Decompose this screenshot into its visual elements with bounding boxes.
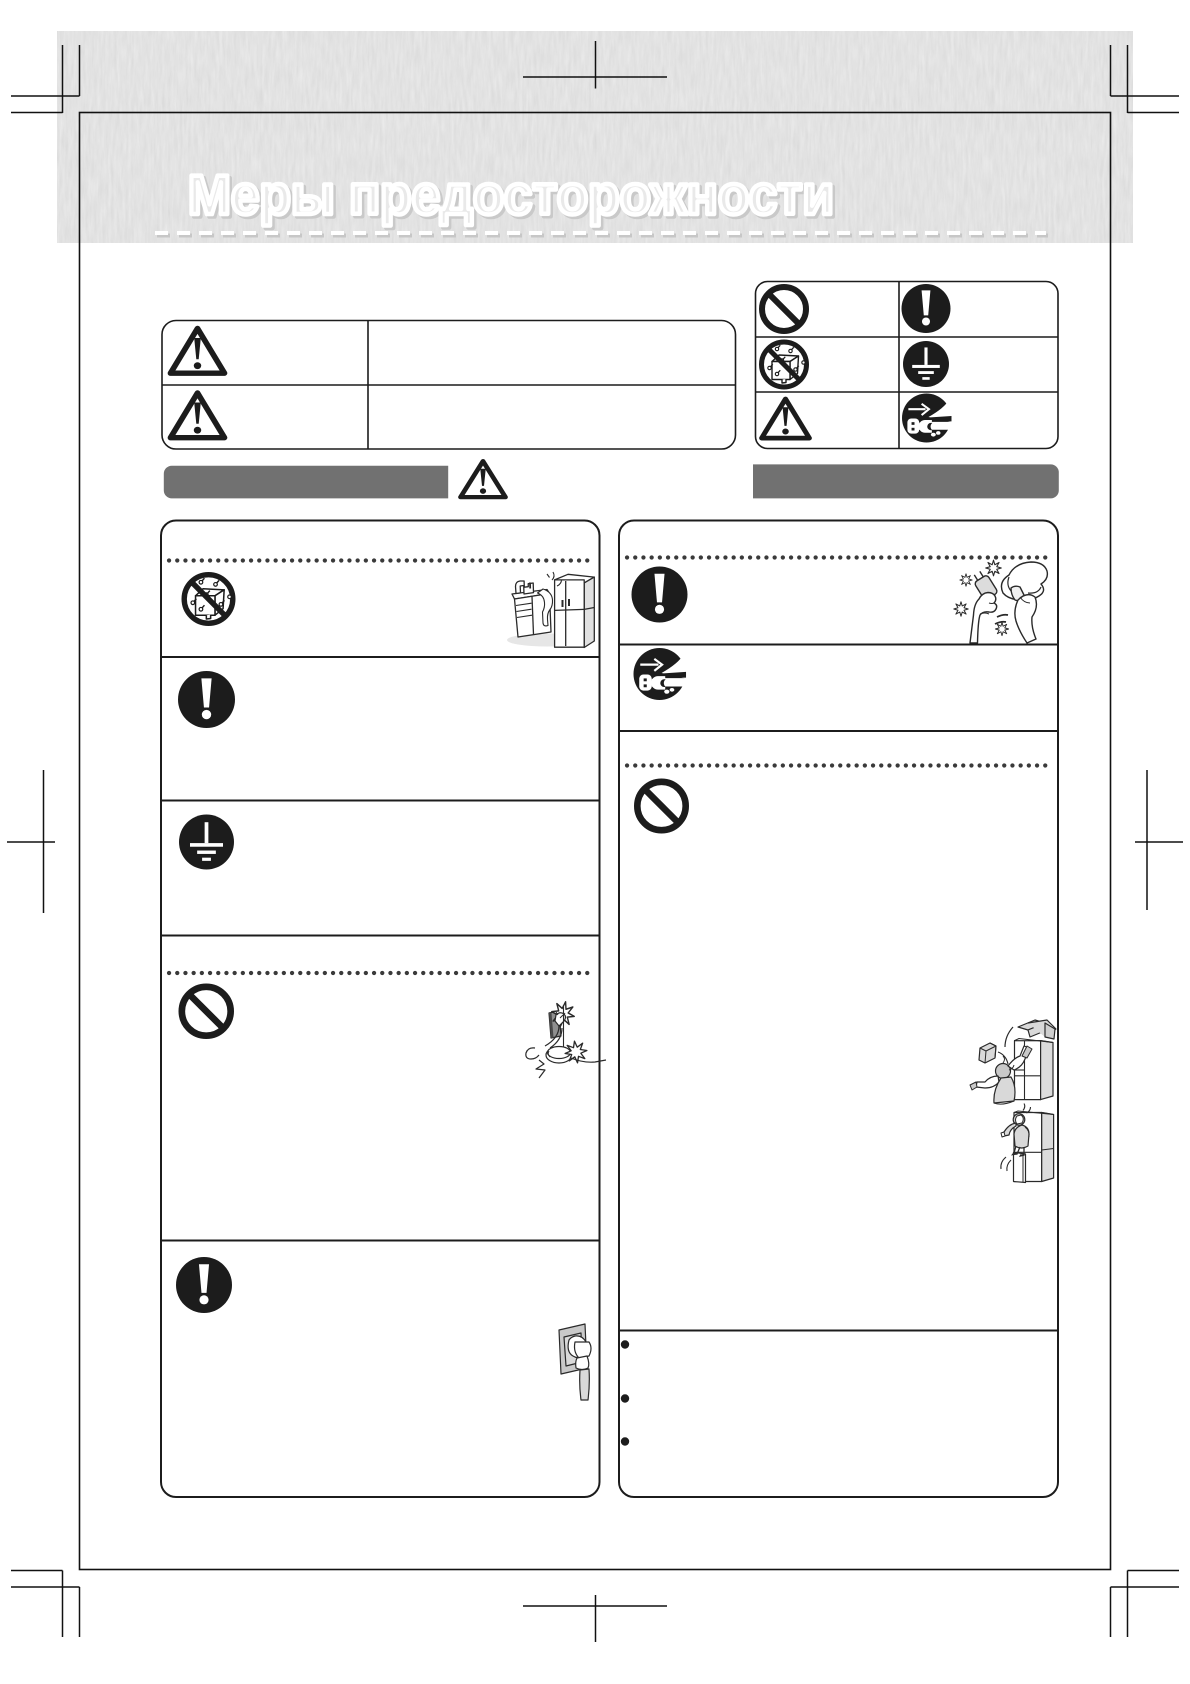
svg-text:Меры предосторожности: Меры предосторожности (188, 163, 834, 226)
